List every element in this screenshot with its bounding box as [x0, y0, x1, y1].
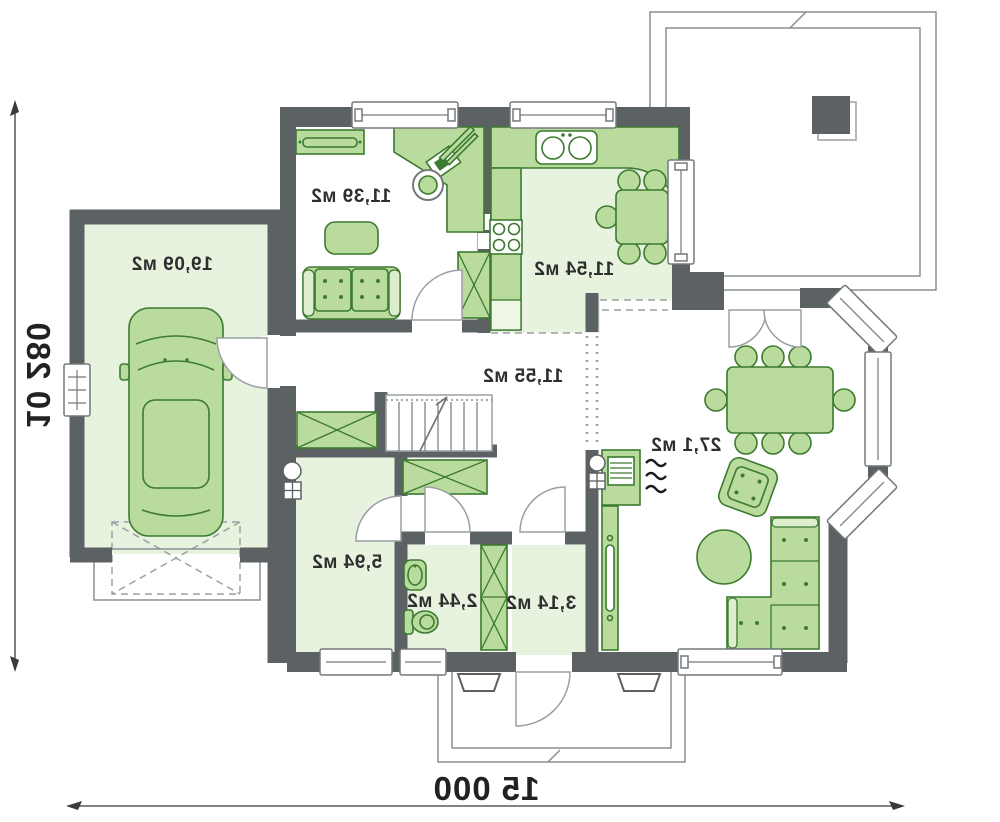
living-room-area-label: 27,1 м2	[651, 435, 721, 457]
window-icon	[678, 649, 782, 675]
front-door-arc	[516, 672, 570, 726]
heat-waves-icon	[646, 460, 666, 466]
office-door-arc	[412, 270, 462, 320]
office-area-label: 11,39 м2	[311, 186, 391, 208]
sofa-icon	[303, 267, 400, 319]
terrace-door-right-arc	[764, 310, 801, 347]
wardrobe-icon	[403, 460, 487, 494]
floor-plan-drawing	[0, 0, 1000, 822]
entry-door-arc	[520, 487, 565, 532]
window-icon	[320, 649, 392, 675]
window-icon	[865, 352, 891, 466]
fireplace-icon	[602, 450, 666, 505]
fridge-wardrobe-icon	[458, 252, 490, 318]
window-icon	[64, 364, 90, 416]
width-dimension-label: 15 000	[433, 770, 540, 808]
porch-column	[618, 674, 660, 691]
wall-niche	[478, 233, 490, 249]
porch-column	[458, 674, 500, 691]
window-icon	[352, 102, 458, 128]
vertical-dimension-line	[10, 100, 19, 672]
entry-area-label: 3,14 м2	[506, 593, 576, 615]
armchair-icon	[716, 455, 780, 519]
window-icon	[668, 160, 694, 264]
sink-icon	[536, 131, 597, 164]
desk-chair-icon	[413, 170, 443, 200]
utility-area-label: 5,94 м2	[312, 552, 382, 574]
rug-icon	[697, 530, 751, 584]
height-dimension-label: 10 280	[19, 322, 57, 429]
dining-table-icon	[705, 346, 855, 454]
chimney-icon	[812, 96, 856, 140]
window-icon	[827, 285, 898, 356]
tv-stand-icon	[602, 506, 618, 650]
shelf-icon	[296, 130, 364, 154]
wardrobe-icon	[481, 545, 507, 650]
hallway-area-label: 11,55 м2	[483, 366, 563, 388]
terrace-door-left-arc	[729, 310, 766, 347]
toilet-icon	[404, 610, 438, 634]
car-icon	[120, 308, 232, 536]
floor-plan-page: 19,09 м2 11,39 м2 11,54 м2 11,55 м2 27,1…	[0, 0, 1000, 822]
coffee-table-icon	[325, 222, 378, 254]
garage-area-label: 19,09 м2	[131, 254, 212, 276]
wc-area-label: 2,44 м2	[407, 591, 477, 613]
stove-icon	[490, 220, 522, 254]
washbasin-icon	[404, 560, 426, 590]
wardrobe-icon	[297, 412, 377, 448]
stairs-icon	[386, 395, 492, 451]
window-icon	[510, 102, 616, 128]
window-icon	[400, 649, 446, 675]
window-icon	[827, 469, 898, 540]
kitchen-area-label: 11,54 м2	[534, 259, 614, 281]
